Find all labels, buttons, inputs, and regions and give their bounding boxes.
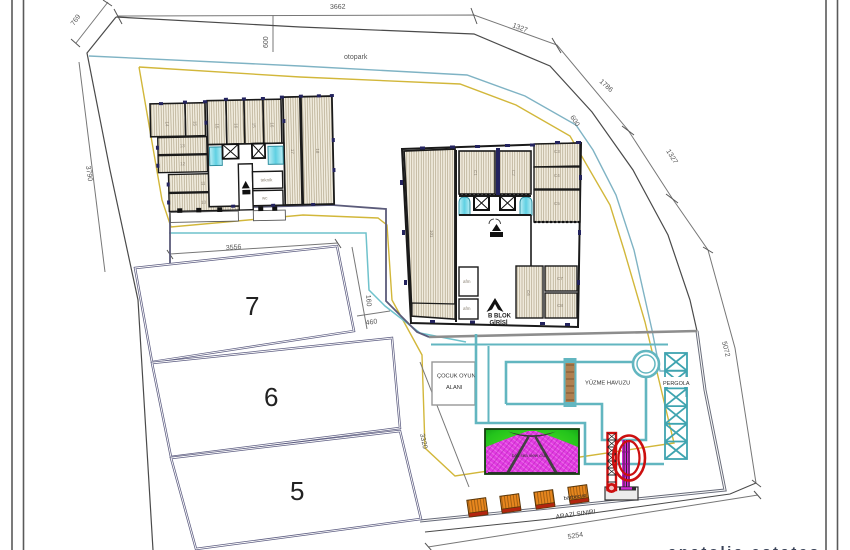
- svg-text:YÜZME HAVUZU: YÜZME HAVUZU: [585, 380, 630, 387]
- svg-text:C4: C4: [554, 173, 560, 178]
- svg-text:11: 11: [201, 181, 206, 186]
- svg-text:13: 13: [180, 143, 186, 148]
- svg-text:anatolia estates: anatolia estates: [668, 544, 821, 550]
- svg-text:15: 15: [214, 123, 219, 129]
- svg-text:16: 16: [269, 122, 274, 128]
- svg-text:3556: 3556: [226, 244, 242, 252]
- svg-text:3662: 3662: [330, 4, 346, 11]
- svg-text:15: 15: [251, 123, 256, 129]
- svg-text:5: 5: [290, 476, 304, 506]
- svg-text:teknik: teknik: [261, 177, 274, 182]
- svg-text:afm: afm: [463, 279, 471, 284]
- svg-text:C3: C3: [554, 149, 560, 154]
- svg-text:17: 17: [290, 149, 295, 155]
- svg-text:GİRİŞİ: GİRİŞİ: [490, 320, 508, 327]
- svg-text:C8: C8: [557, 303, 563, 308]
- svg-text:ÇOCUK OYUN: ÇOCUK OYUN: [437, 374, 476, 380]
- svg-text:18: 18: [315, 148, 320, 154]
- svg-text:otopark: otopark: [344, 54, 368, 61]
- svg-text:C7: C7: [557, 276, 563, 281]
- svg-text:B BLOK: B BLOK: [488, 314, 512, 320]
- svg-text:10: 10: [201, 200, 207, 205]
- svg-text:600: 600: [263, 36, 270, 48]
- svg-text:bax sea view club: bax sea view club: [512, 453, 548, 458]
- svg-text:7: 7: [245, 291, 259, 321]
- svg-text:C6: C6: [526, 290, 531, 296]
- svg-text:afm: afm: [463, 306, 471, 311]
- svg-text:ALANI: ALANI: [446, 385, 463, 391]
- svg-text:C1: C1: [473, 170, 478, 176]
- svg-text:6: 6: [264, 382, 278, 412]
- svg-text:15: 15: [192, 121, 197, 127]
- svg-text:wc: wc: [262, 195, 268, 200]
- svg-text:PERGOLA: PERGOLA: [663, 381, 690, 387]
- svg-text:C5: C5: [554, 201, 560, 206]
- svg-text:12: 12: [180, 161, 186, 166]
- svg-text:160: 160: [364, 295, 372, 307]
- svg-text:14: 14: [164, 121, 169, 127]
- svg-text:C2: C2: [511, 170, 516, 176]
- svg-text:101: 101: [429, 230, 434, 238]
- svg-text:16: 16: [233, 123, 238, 129]
